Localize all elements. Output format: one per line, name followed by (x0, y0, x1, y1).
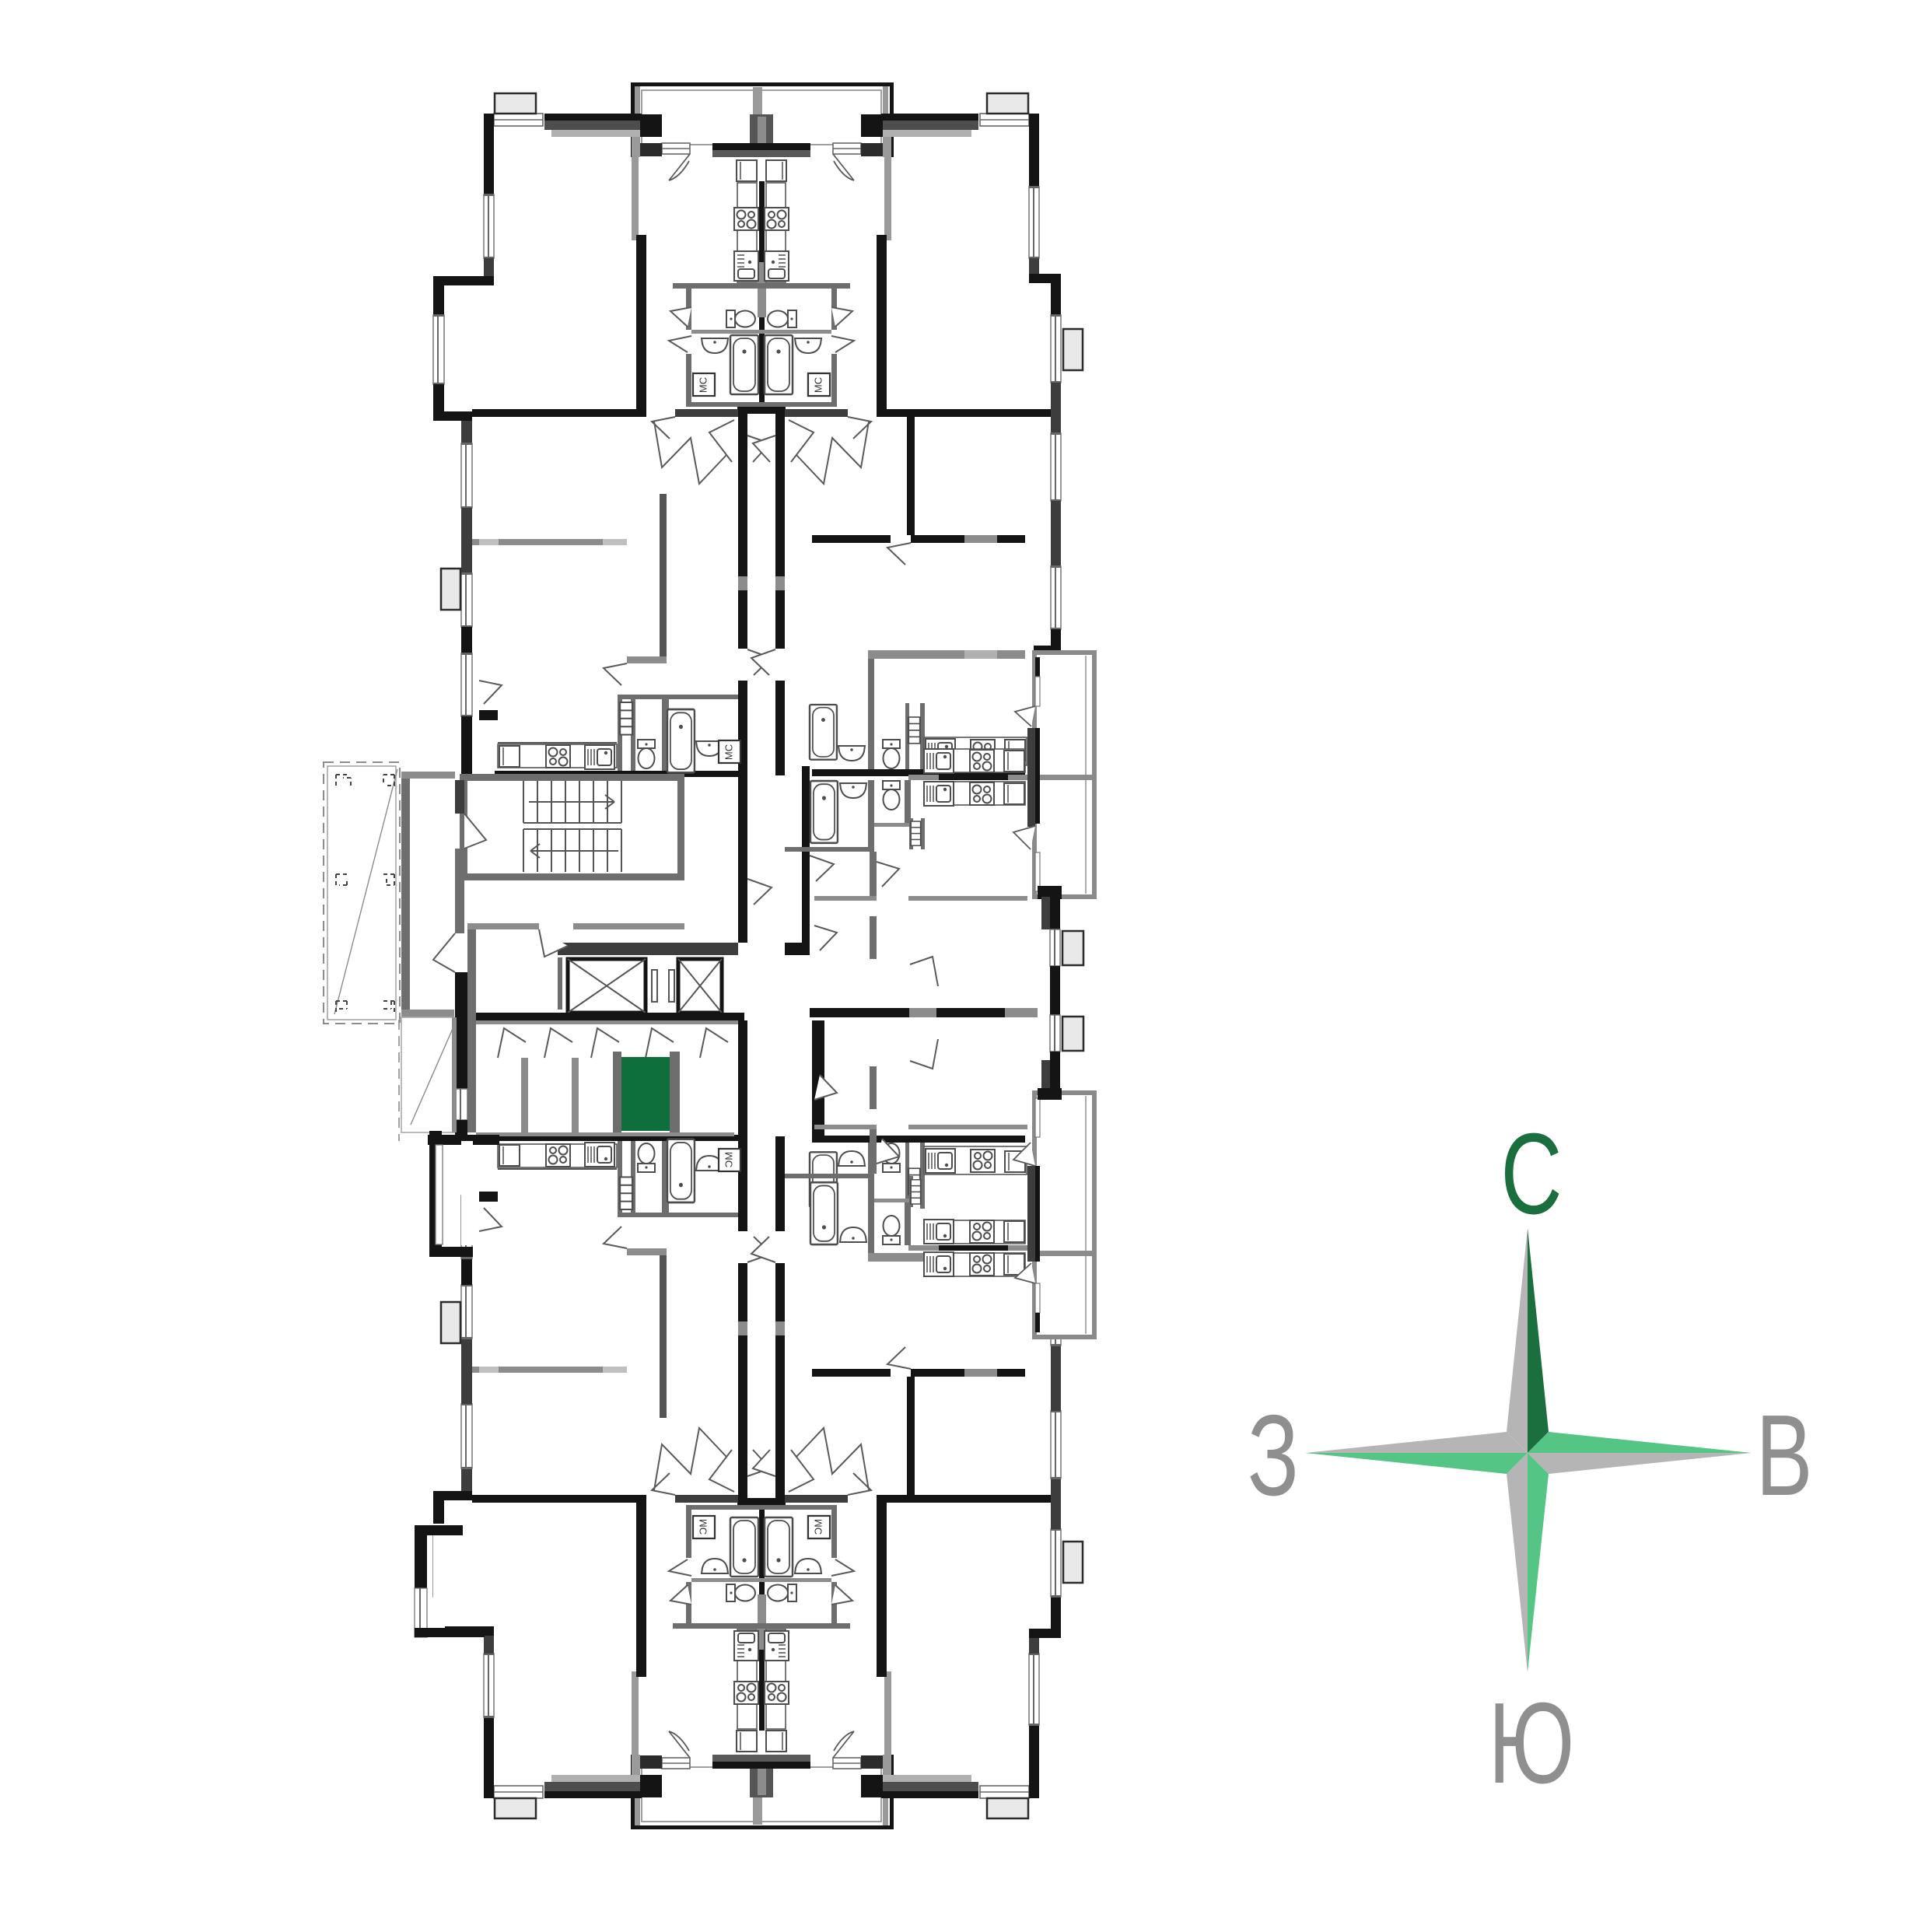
svg-text:З: З (1248, 1391, 1299, 1520)
svg-text:С: С (1500, 1109, 1562, 1238)
svg-text:Ю: Ю (1489, 1678, 1575, 1808)
svg-text:В: В (1755, 1391, 1812, 1520)
